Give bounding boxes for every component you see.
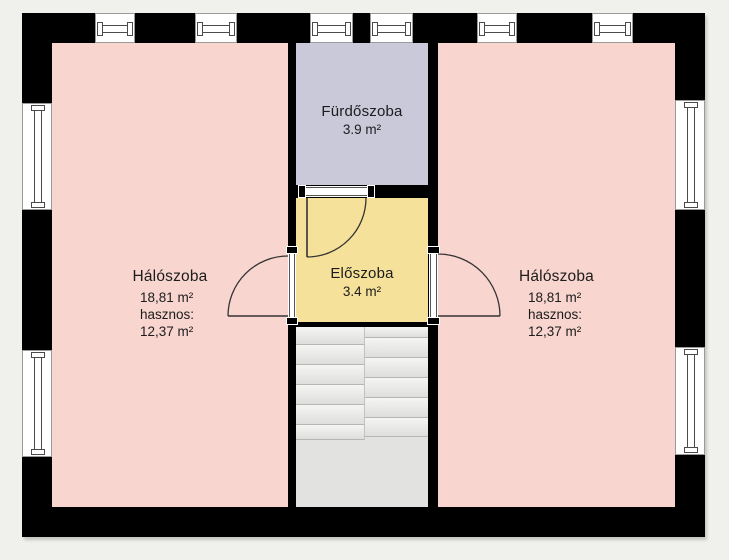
stair-step [364,327,428,338]
door-opening-bathroom [305,186,368,197]
room-label-bedroom-left: Hálószoba [52,268,288,286]
area-value-bathroom: 3.9 m² [296,122,428,137]
room-details-bedroom-left: 18,81 m² hasznos: 12,37 m² [140,289,194,340]
window-symbol [675,347,705,455]
window-symbol [95,13,135,43]
floor-plan-canvas: Hálószoba 18,81 m² hasznos: 12,37 m² Hál… [0,0,729,560]
stair-step [364,378,428,398]
stair-step [364,338,428,358]
room-hallway [296,198,428,322]
window-symbol [477,13,517,43]
window-symbol [22,103,52,210]
useful-label: hasznos: [140,306,194,323]
stair-step [296,327,364,345]
useful-area-value: 12,37 m² [528,323,582,340]
area-value: 18,81 m² [528,289,582,306]
door-jamb [427,246,440,254]
area-value-hallway: 3.4 m² [296,284,428,299]
room-label-hallway: Előszoba [296,265,428,282]
stair-divider-line [364,327,365,440]
door-opening-left-bedroom [288,253,296,318]
door-jamb [298,185,306,198]
window-symbol [310,13,353,43]
room-label-bedroom-right: Hálószoba [438,268,675,286]
useful-label: hasznos: [528,306,582,323]
room-label-bathroom: Fürdőszoba [296,103,428,120]
window-symbol [592,13,633,43]
stair-step [296,405,364,425]
area-value: 18,81 m² [140,289,194,306]
stair-step [296,385,364,405]
door-jamb [286,317,298,325]
staircase [296,327,428,507]
window-symbol [370,13,413,43]
window-symbol [195,13,237,43]
stair-step [296,425,364,440]
stair-step [364,418,428,437]
window-symbol [675,100,705,210]
stair-step [296,365,364,385]
door-jamb [286,246,298,254]
useful-area-value: 12,37 m² [140,323,194,340]
stair-step [364,398,428,418]
door-opening-right-bedroom [429,253,438,318]
stair-step [364,358,428,378]
window-symbol [22,350,52,457]
room-details-bedroom-right: 18,81 m² hasznos: 12,37 m² [528,289,582,340]
door-jamb [367,185,375,198]
stair-step [296,345,364,365]
door-jamb [427,317,440,325]
